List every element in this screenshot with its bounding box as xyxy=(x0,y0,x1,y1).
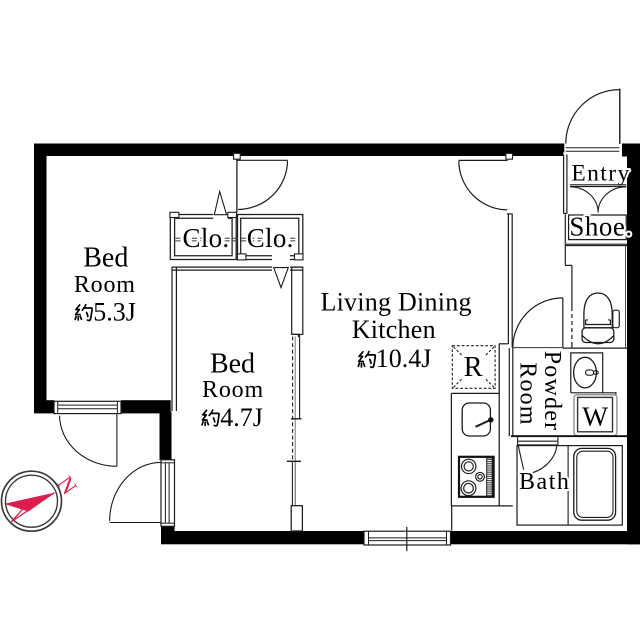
svg-text:Bed: Bed xyxy=(210,349,255,380)
svg-text:Powder: Powder xyxy=(539,351,565,432)
svg-text:Bed: Bed xyxy=(83,243,128,274)
svg-text:W: W xyxy=(582,400,608,431)
svg-text:Room: Room xyxy=(515,362,541,425)
svg-text:Room: Room xyxy=(202,377,264,403)
svg-text:Kitchen: Kitchen xyxy=(352,315,436,344)
svg-text:Living Dining: Living Dining xyxy=(320,288,471,317)
svg-text:R: R xyxy=(464,352,483,383)
svg-text:Clo.: Clo. xyxy=(183,223,230,253)
svg-text:Bath: Bath xyxy=(519,469,570,495)
svg-text:Entry: Entry xyxy=(571,160,630,186)
svg-text:5.3J: 5.3J xyxy=(93,297,136,326)
svg-text:Shoe.: Shoe. xyxy=(569,211,632,241)
svg-text:Clo.: Clo. xyxy=(247,223,294,253)
svg-text:4.7J: 4.7J xyxy=(220,403,263,432)
svg-text:Room: Room xyxy=(74,272,136,298)
svg-text:10.4J: 10.4J xyxy=(376,344,432,373)
